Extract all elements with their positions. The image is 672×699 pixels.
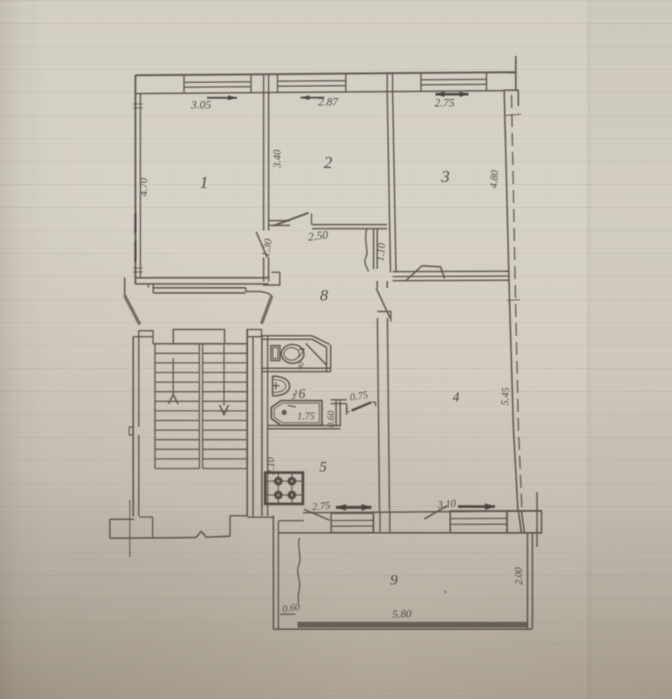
svg-text:3.05: 3.05 [190,100,211,112]
svg-text:4.70: 4.70 [139,177,150,196]
svg-text:2.75: 2.75 [312,501,331,514]
svg-text:40: 40 [295,360,306,370]
svg-text:5.80: 5.80 [392,608,412,621]
svg-text:2.75: 2.75 [434,98,454,110]
svg-text:1.10: 1.10 [375,242,388,262]
svg-text:5.45: 5.45 [500,387,512,406]
svg-text:4: 4 [453,390,460,405]
svg-text:9: 9 [390,573,398,589]
svg-text:8: 8 [320,288,328,305]
svg-text:0.75: 0.75 [349,390,369,404]
svg-text:1: 1 [200,173,209,192]
svg-text:2.00: 2.00 [514,567,525,585]
svg-text:0.60: 0.60 [282,602,301,615]
svg-text:3.40: 3.40 [273,149,284,169]
svg-text:2: 2 [324,153,333,172]
svg-text:4.80: 4.80 [489,169,501,189]
svg-text:6: 6 [299,386,306,401]
svg-text:1.30: 1.30 [261,237,275,258]
svg-text:1.75: 1.75 [297,412,315,423]
svg-text:3.10: 3.10 [436,499,457,511]
svg-text:2.50: 2.50 [307,229,329,243]
svg-text:3: 3 [440,167,450,186]
svg-text:5: 5 [319,460,326,476]
svg-text:2.10: 2.10 [266,457,277,475]
